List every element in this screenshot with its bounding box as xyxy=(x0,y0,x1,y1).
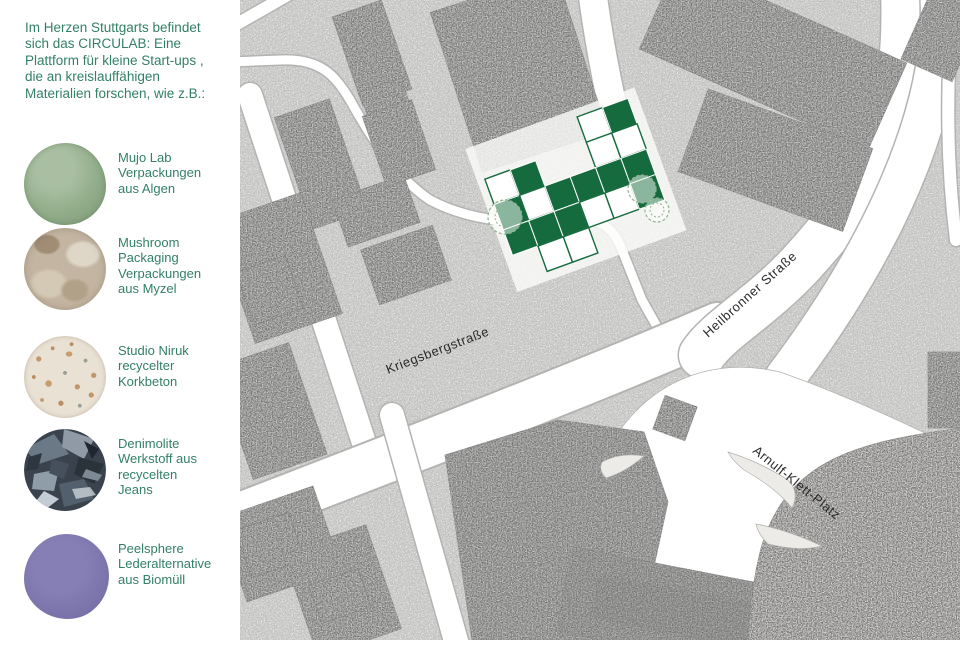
material-swatch-peel xyxy=(24,534,109,619)
material-label: Peelsphere Lederalternative aus Biomüll xyxy=(118,541,236,587)
tree-icon xyxy=(645,198,669,222)
material-label: Studio Niruk recycelter Korkbeton xyxy=(118,343,236,389)
legend-panel: Im Herzen Stuttgarts befindet sich das C… xyxy=(0,0,240,640)
denim-texture xyxy=(24,429,106,511)
material-swatch-algae xyxy=(24,143,106,225)
material-row-studio-niruk: Studio Niruk recycelter Korkbeton xyxy=(24,336,229,422)
material-row-peelsphere: Peelsphere Lederalternative aus Biomüll xyxy=(24,534,229,620)
material-label: Denimolite Werkstoff aus recycelten Jean… xyxy=(118,436,236,497)
site-map: Kriegsbergstraße Heilbronner Straße Arnu… xyxy=(240,0,960,640)
material-row-mushroom-packaging: Mushroom Packaging Verpackungen aus Myze… xyxy=(24,228,229,314)
material-row-mujo-lab: Mujo Lab Verpackungen aus Algen xyxy=(24,143,229,229)
material-label: Mushroom Packaging Verpackungen aus Myze… xyxy=(118,235,236,296)
material-swatch-cork xyxy=(24,336,106,418)
intro-text: Im Herzen Stuttgarts befindet sich das C… xyxy=(25,20,237,102)
material-swatch-denim xyxy=(24,429,106,511)
material-swatch-mycelium xyxy=(24,228,106,310)
material-label: Mujo Lab Verpackungen aus Algen xyxy=(118,150,236,196)
site-map-svg: Kriegsbergstraße Heilbronner Straße Arnu… xyxy=(240,0,960,640)
material-row-denimolite: Denimolite Werkstoff aus recycelten Jean… xyxy=(24,429,229,515)
tree-icon xyxy=(488,200,522,234)
